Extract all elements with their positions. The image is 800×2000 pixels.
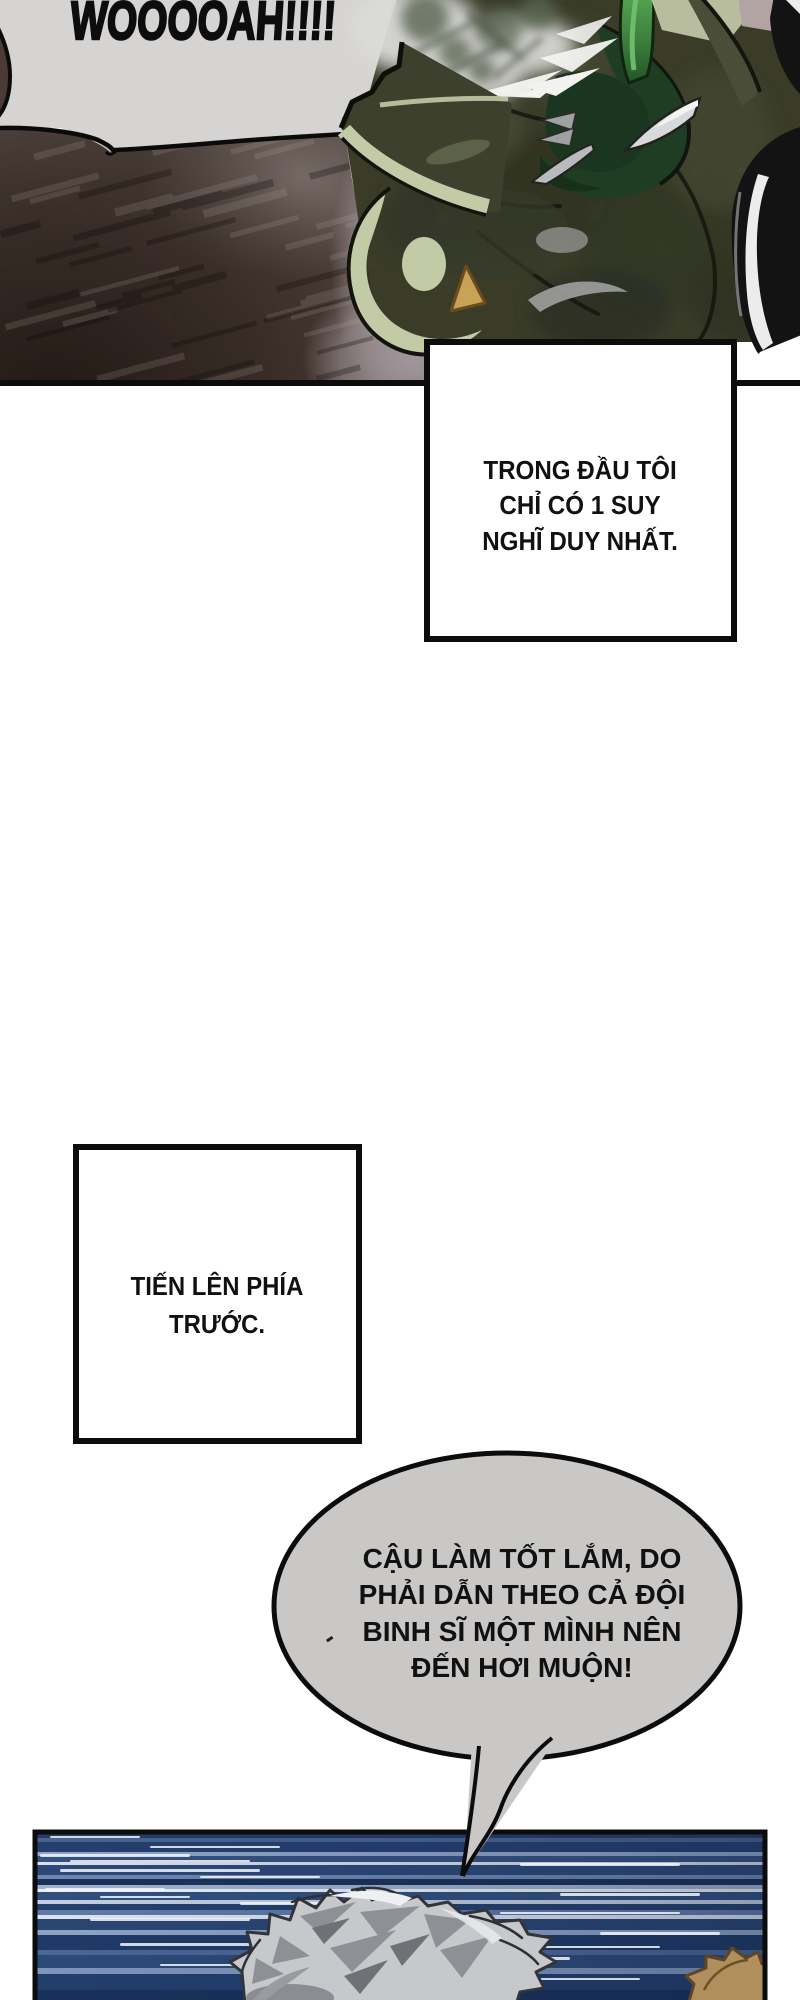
svg-text:PHẢI DẪN THEO CẢ ĐỘI: PHẢI DẪN THEO CẢ ĐỘI [359, 1578, 686, 1610]
svg-text:TRONG ĐẦU TÔI: TRONG ĐẦU TÔI [483, 454, 676, 485]
svg-text:TRƯỚC.: TRƯỚC. [169, 1308, 265, 1339]
svg-text:BINH SĨ MỘT MÌNH NÊN: BINH SĨ MỘT MÌNH NÊN [363, 1615, 682, 1647]
svg-text:NGHĨ DUY NHẤT.: NGHĨ DUY NHẤT. [482, 525, 678, 556]
svg-text:ĐẾN HƠI MUỘN!: ĐẾN HƠI MUỘN! [411, 1651, 632, 1683]
svg-text:CẬU LÀM TỐT LẮM, DO: CẬU LÀM TỐT LẮM, DO [363, 1542, 682, 1574]
svg-text:WOOOOAH!!!!: WOOOOAH!!!! [68, 0, 337, 50]
svg-text:CHỈ CÓ 1 SUY: CHỈ CÓ 1 SUY [499, 489, 660, 520]
svg-text:TIẾN LÊN PHÍA: TIẾN LÊN PHÍA [131, 1270, 304, 1301]
